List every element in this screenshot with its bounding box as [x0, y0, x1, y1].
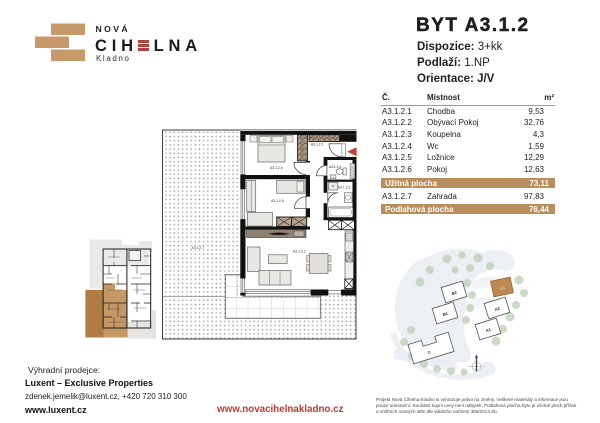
svg-text:A3.1.2.1: A3.1.2.1: [311, 143, 324, 147]
svg-text:A3.1.2.6: A3.1.2.6: [270, 166, 283, 170]
svg-text:A3.1.2.4: A3.1.2.4: [329, 165, 342, 169]
svg-text:A3.1.2.5: A3.1.2.5: [271, 199, 284, 203]
svg-text:A3.1.2.7: A3.1.2.7: [192, 246, 205, 250]
svg-text:A3.1.2.3: A3.1.2.3: [338, 185, 351, 189]
svg-text:A3.1.2.2: A3.1.2.2: [293, 250, 306, 254]
